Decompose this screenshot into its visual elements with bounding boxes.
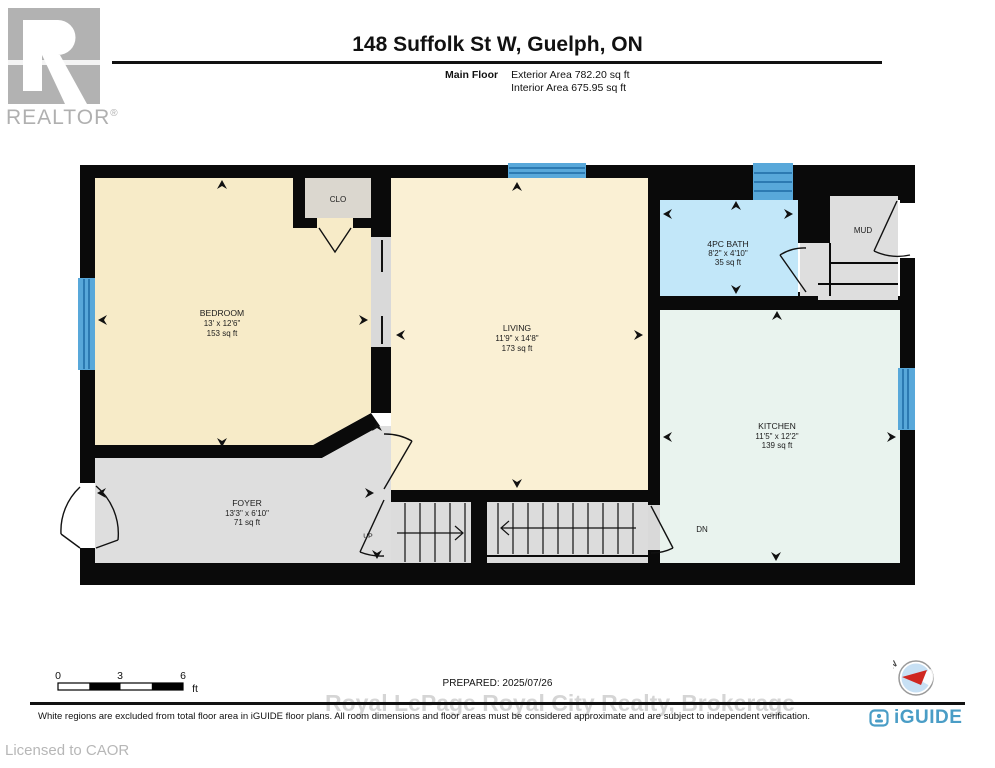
compass-north-label: N bbox=[893, 658, 899, 670]
iguide-logo: iGUIDE bbox=[869, 707, 962, 729]
bedroom-area: 153 sq ft bbox=[207, 329, 238, 338]
living-name: LIVING bbox=[503, 323, 531, 333]
bedroom-dims: 13' x 12'6" bbox=[204, 319, 241, 328]
step-line-1 bbox=[830, 262, 898, 264]
bedroom-window bbox=[78, 278, 95, 370]
prepared-date: PREPARED: 2025/07/26 bbox=[0, 678, 995, 689]
footer-divider bbox=[30, 702, 965, 705]
landing-divider bbox=[829, 243, 831, 296]
closet-name: CLO bbox=[330, 195, 346, 204]
kitchen-window bbox=[898, 368, 915, 430]
iguide-wordmark: iGUIDE bbox=[894, 707, 962, 729]
bath-dims: 8'2" x 4'10" bbox=[708, 249, 748, 258]
mud-step-1 bbox=[830, 264, 898, 283]
kitchen-dims: 11'5" x 12'2" bbox=[755, 432, 798, 441]
floor-plan-page: REALTOR® 148 Suffolk St W, Guelph, ON Ma… bbox=[0, 0, 995, 768]
bath-area: 35 sq ft bbox=[715, 258, 742, 267]
living-dims: 11'9" x 14'8" bbox=[495, 334, 538, 343]
iguide-camera-icon bbox=[869, 708, 890, 728]
floor-plan: BEDROOM 13' x 12'6" 153 sq ft LIVING 11'… bbox=[0, 0, 995, 768]
stairs-down-label: DN bbox=[696, 525, 708, 534]
living-area: 173 sq ft bbox=[502, 344, 533, 353]
disclaimer-text: White regions are excluded from total fl… bbox=[38, 711, 958, 722]
licensed-text: Licensed to CAOR bbox=[5, 742, 129, 759]
stairs-down-landing bbox=[487, 557, 648, 563]
bath-name: 4PC BATH bbox=[707, 239, 748, 249]
closet-door-gap bbox=[317, 218, 353, 228]
kitchen-area: 139 sq ft bbox=[762, 441, 793, 450]
kitchen-name: KITCHEN bbox=[758, 421, 796, 431]
bath-window bbox=[753, 163, 793, 200]
step-line-2 bbox=[818, 283, 898, 285]
bedroom-name: BEDROOM bbox=[200, 308, 244, 318]
mud-name: MUD bbox=[854, 226, 872, 235]
foyer-dims: 13'3" x 6'10" bbox=[225, 509, 269, 518]
compass-icon: N bbox=[893, 654, 939, 700]
foyer-area: 71 sq ft bbox=[234, 518, 261, 527]
foyer-name: FOYER bbox=[232, 498, 262, 508]
stairs-up-label: UP bbox=[363, 533, 373, 540]
living-window bbox=[508, 163, 586, 178]
stairs-down-landing-line bbox=[487, 555, 648, 557]
